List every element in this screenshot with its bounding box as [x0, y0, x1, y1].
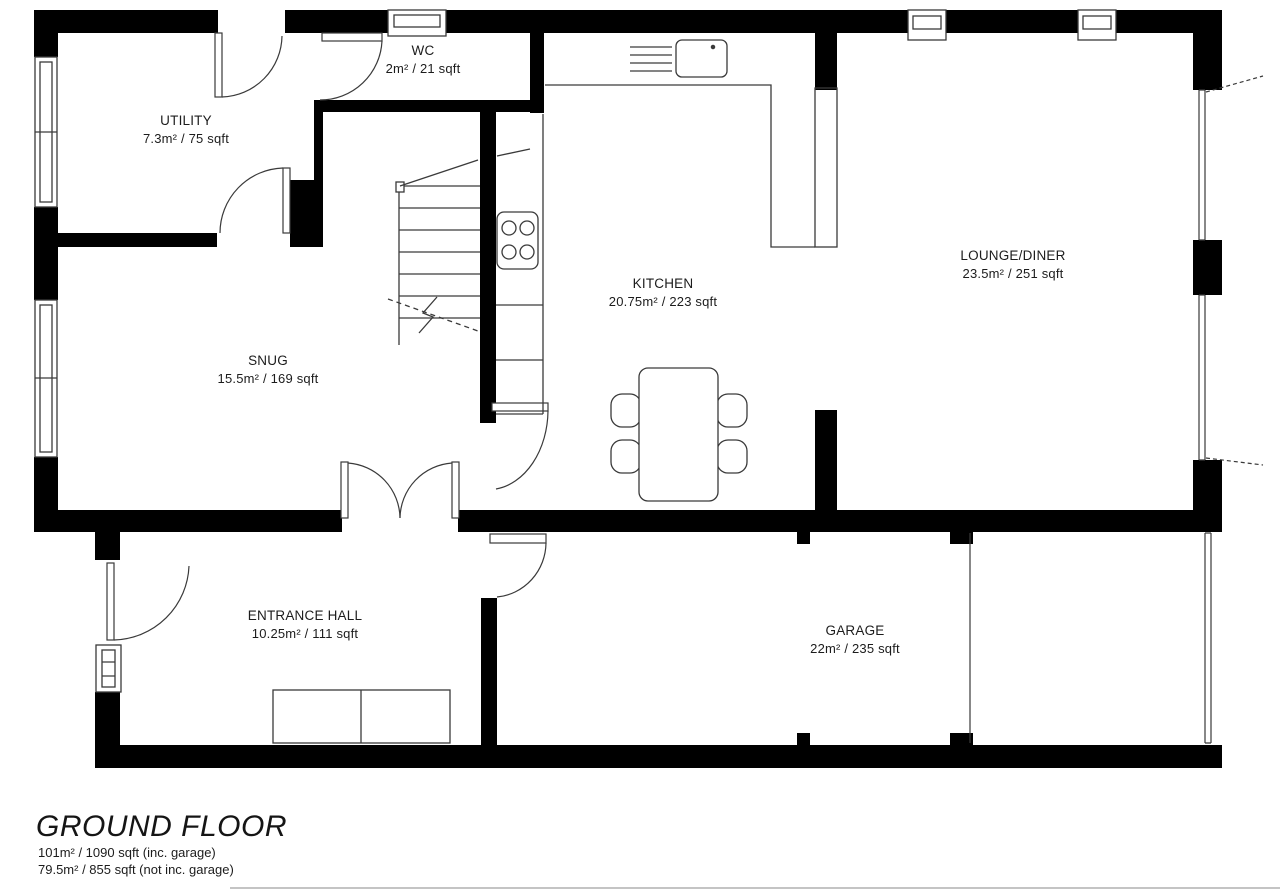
total-area-exc-garage: 79.5m² / 855 sqft (not inc. garage) — [38, 861, 287, 878]
door-leaf — [341, 462, 348, 518]
wall-wc-pier — [290, 180, 323, 247]
room-area: 15.5m² / 169 sqft — [218, 370, 319, 388]
room-name: LOUNGE/DINER — [960, 247, 1065, 265]
room-label-entrance-hall: ENTRANCE HALL 10.25m² / 111 sqft — [248, 607, 362, 642]
window-glazing — [102, 650, 115, 687]
glazed-door-panel — [1199, 90, 1205, 240]
wall-right-pier — [1193, 240, 1222, 295]
wall-spine-right — [458, 510, 1222, 532]
door-swing-arc — [400, 463, 452, 518]
wall-kitchen-left — [480, 112, 496, 423]
kitchen-fixtures — [496, 40, 837, 414]
door-leaf — [492, 403, 548, 411]
stair-rail-line — [400, 149, 530, 186]
door-swing-arc — [496, 411, 548, 489]
snug-french-doors — [341, 462, 459, 518]
wc-door — [320, 33, 382, 100]
garage-door-line — [1205, 533, 1211, 743]
wall-bottom — [95, 745, 1222, 768]
room-name: WC — [386, 42, 461, 60]
wall-left-2 — [34, 207, 58, 300]
wall-hall-left-1 — [95, 532, 120, 560]
wall-right-top — [1193, 10, 1222, 90]
door-swing-arc — [220, 168, 283, 233]
door-leaf — [490, 534, 546, 543]
room-label-garage: GARAGE 22m² / 235 sqft — [810, 622, 900, 657]
room-name: GARAGE — [810, 622, 900, 640]
door-swing-arc — [222, 36, 282, 97]
door-swing-arc — [320, 41, 382, 100]
hob — [497, 212, 538, 269]
door-leaf — [215, 33, 222, 97]
window-glazing — [1083, 16, 1111, 29]
lounge-window-2 — [1078, 10, 1116, 40]
room-name: ENTRANCE HALL — [248, 607, 362, 625]
door-swing-arc — [497, 543, 546, 597]
utility-window — [35, 57, 57, 207]
door-swing-arc — [348, 463, 400, 518]
garage-features — [970, 533, 1211, 743]
total-area-inc-garage: 101m² / 1090 sqft (inc. garage) — [38, 844, 287, 861]
door-leaf — [283, 168, 290, 233]
room-name: KITCHEN — [609, 275, 717, 293]
wall-chimney-top — [815, 33, 837, 90]
room-label-kitchen: KITCHEN 20.75m² / 223 sqft — [609, 275, 717, 310]
door-swing-arc — [114, 566, 189, 640]
window-glazing — [394, 15, 440, 27]
glazed-door-panel — [1199, 295, 1205, 460]
wall-wc-right — [530, 33, 544, 113]
hob-burner — [520, 245, 534, 259]
wall-wc-left — [314, 100, 323, 185]
dining-set — [611, 368, 747, 501]
room-label-lounge-diner: LOUNGE/DINER 23.5m² / 251 sqft — [960, 247, 1065, 282]
wall-hall-garage — [481, 598, 497, 745]
garage-pier-3 — [797, 733, 810, 745]
sink-drain — [711, 45, 714, 48]
wall-utility-snug — [34, 233, 217, 247]
dining-chair — [611, 394, 641, 427]
room-area: 23.5m² / 251 sqft — [960, 265, 1065, 283]
door-leaf — [107, 563, 114, 640]
floor-plan-canvas: WC 2m² / 21 sqft UTILITY 7.3m² / 75 sqft… — [0, 0, 1280, 894]
front-door — [107, 563, 189, 640]
utility-external-door — [215, 33, 282, 97]
floor-title: GROUND FLOOR — [36, 810, 287, 844]
stair-direction-line — [388, 299, 478, 331]
worktop-edge-left — [496, 114, 543, 414]
wall-top-4 — [946, 10, 1078, 33]
window-glazing — [913, 16, 941, 29]
room-area: 2m² / 21 sqft — [386, 60, 461, 78]
room-area: 22m² / 235 sqft — [810, 640, 900, 658]
wall-top-2 — [285, 10, 388, 33]
dining-chair — [611, 440, 641, 473]
snug-window — [35, 300, 57, 457]
room-label-utility: UTILITY 7.3m² / 75 sqft — [143, 112, 229, 147]
room-area: 10.25m² / 111 sqft — [248, 625, 362, 643]
wall-chimney-bottom — [815, 410, 837, 510]
hob-burner — [502, 245, 516, 259]
dining-chair — [717, 394, 747, 427]
dining-table — [639, 368, 718, 501]
room-name: SNUG — [218, 352, 319, 370]
room-label-snug: SNUG 15.5m² / 169 sqft — [218, 352, 319, 387]
hall-sidelight-window — [96, 645, 121, 692]
wall-top-3 — [446, 10, 908, 33]
chimney-breast — [815, 88, 837, 247]
garage-pier-1 — [797, 532, 810, 544]
plan-footer: GROUND FLOOR 101m² / 1090 sqft (inc. gar… — [36, 810, 287, 878]
utility-snug-door — [220, 168, 290, 233]
room-area: 7.3m² / 75 sqft — [143, 130, 229, 148]
room-area: 20.75m² / 223 sqft — [609, 293, 717, 311]
wall-wc-bottom — [315, 100, 540, 112]
wc-window — [388, 10, 446, 36]
wall-right-bottom — [1193, 460, 1222, 532]
dining-chair — [717, 440, 747, 473]
worktop-edge-right — [545, 85, 815, 247]
sink — [676, 40, 727, 77]
hob-burner — [520, 221, 534, 235]
hob-burner — [502, 221, 516, 235]
wall-spine-left — [34, 510, 342, 532]
stair-newel-post — [396, 182, 404, 192]
stair-treads — [399, 186, 480, 318]
hall-garage-door — [490, 534, 546, 597]
door-leaf — [452, 462, 459, 518]
wall-left-1 — [34, 10, 58, 57]
kitchen-door — [492, 403, 548, 489]
draining-board-lines — [630, 47, 672, 71]
door-leaf — [322, 33, 382, 41]
staircase — [388, 149, 530, 345]
room-name: UTILITY — [143, 112, 229, 130]
hall-furniture — [273, 690, 450, 743]
lounge-window-1 — [908, 10, 946, 40]
wall-top-1 — [36, 10, 218, 33]
room-label-wc: WC 2m² / 21 sqft — [386, 42, 461, 77]
wall-hall-left-2 — [95, 692, 120, 745]
